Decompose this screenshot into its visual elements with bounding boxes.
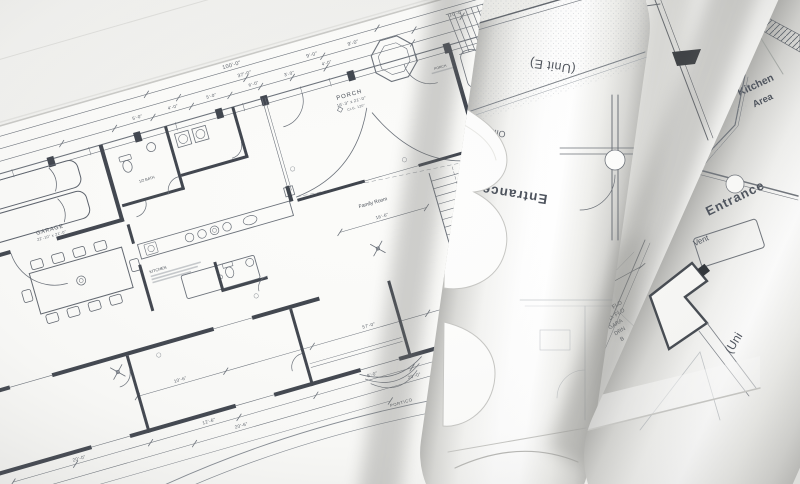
photo-vignette <box>0 0 800 484</box>
blueprint-photo: 100'-0" 28'-6" 37'-0" 9'-0" 9'-0" 10'-0"… <box>0 0 800 484</box>
